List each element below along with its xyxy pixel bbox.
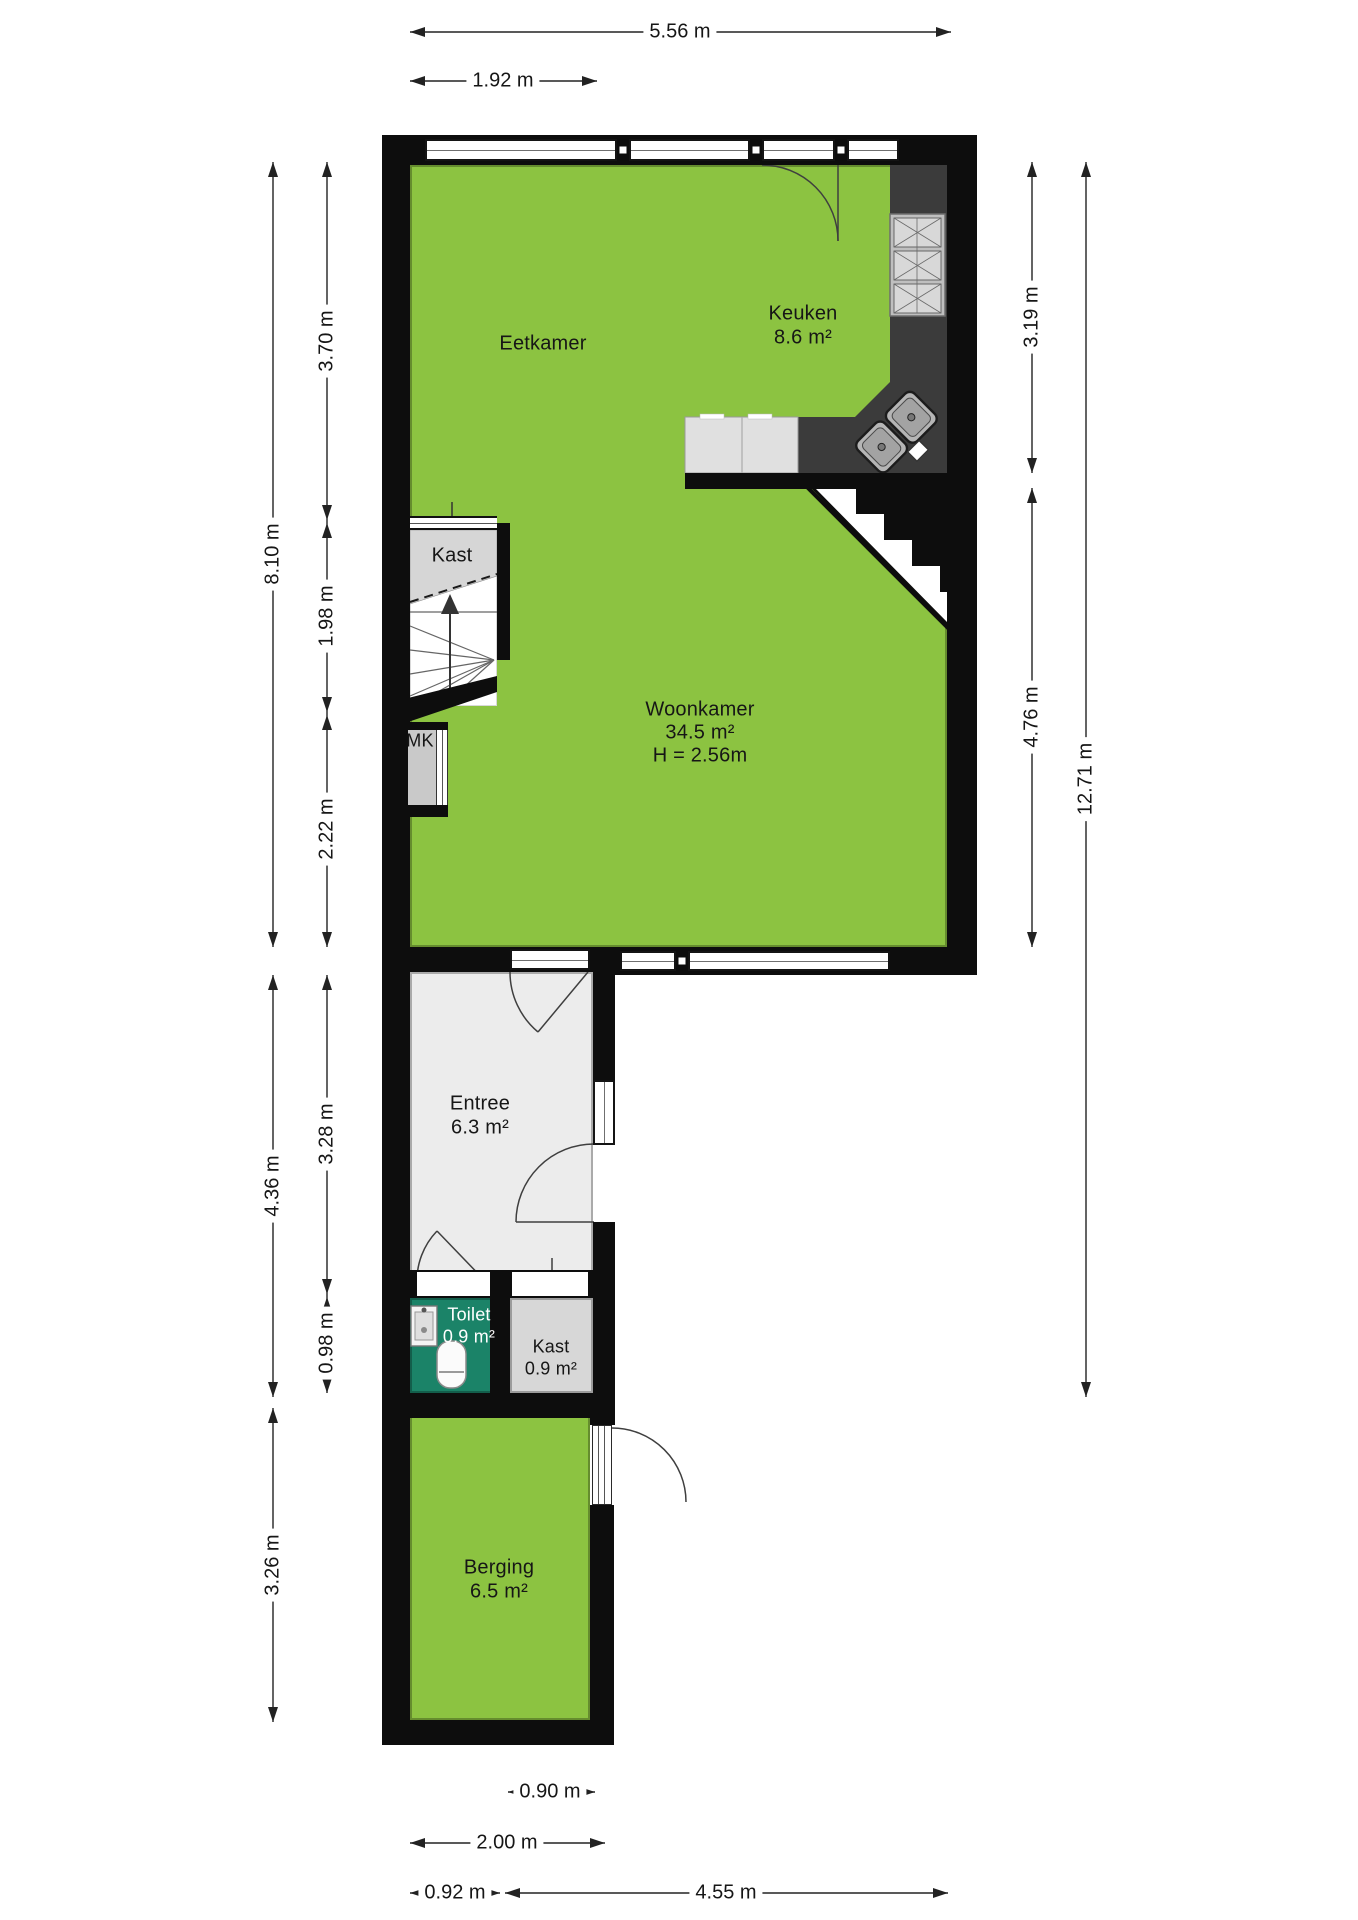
front-door-sidelight bbox=[593, 1080, 615, 1145]
toilet-door-opening bbox=[417, 1272, 490, 1296]
dim-left-berging: 3.26 m bbox=[261, 1528, 286, 1601]
dim-left-seg-3: 2.22 m bbox=[315, 792, 340, 865]
glazed-panel-entree-door bbox=[510, 949, 590, 970]
wall-kitchen-bottom bbox=[685, 473, 947, 489]
room-label-toilet: Toilet bbox=[447, 1305, 490, 1326]
meter-cupboard-door bbox=[436, 730, 448, 805]
room-height-woonkamer: H = 2.56m bbox=[653, 745, 748, 768]
window-top-3 bbox=[762, 139, 835, 161]
dim-right-woonkamer: 4.76 m bbox=[1020, 680, 1045, 753]
toilet-icon bbox=[437, 1341, 466, 1388]
wall-berging-right bbox=[590, 1505, 614, 1745]
room-area-toilet: 0.9 m² bbox=[443, 1327, 495, 1348]
window-livingroom-bottom-2 bbox=[688, 951, 890, 971]
wall-left bbox=[382, 135, 410, 1745]
room-area-berging: 6.5 m² bbox=[470, 1581, 528, 1604]
window-top-1 bbox=[425, 139, 617, 161]
window-mullion-icon bbox=[617, 139, 629, 161]
stairs-icon bbox=[408, 502, 497, 722]
dim-right-total: 12.71 m bbox=[1074, 737, 1099, 821]
closet-lower-opening bbox=[512, 1272, 588, 1296]
dim-bottom-right: 4.55 m bbox=[689, 1881, 762, 1906]
dim-left-seg-entree: 3.28 m bbox=[315, 1097, 340, 1170]
corner-stairs-icon bbox=[806, 486, 951, 631]
closet-sliding-door bbox=[410, 516, 497, 530]
dim-left-total-hall: 4.36 m bbox=[261, 1149, 286, 1222]
front-door-swing bbox=[516, 1144, 594, 1222]
floor-plan: Eetkamer Keuken 8.6 m² Woonkamer 34.5 m²… bbox=[0, 0, 1358, 1920]
wall-entree-right-a bbox=[593, 975, 615, 1080]
wall-stairs-right bbox=[497, 523, 510, 660]
dim-top-width: 5.56 m bbox=[643, 20, 716, 45]
room-label-eetkamer: Eetkamer bbox=[499, 333, 586, 356]
room-label-kast-lower: Kast bbox=[533, 1337, 570, 1358]
room-label-berging: Berging bbox=[464, 1557, 534, 1580]
room-area-keuken: 8.6 m² bbox=[774, 327, 832, 350]
washbasin-icon bbox=[411, 1306, 437, 1346]
room-area-entree: 6.3 m² bbox=[451, 1117, 509, 1140]
room-area-woonkamer: 34.5 m² bbox=[665, 722, 734, 745]
dim-left-seg-toilet: 0.98 m bbox=[315, 1306, 340, 1379]
dim-bottom-door: 0.90 m bbox=[513, 1780, 586, 1805]
room-label-kast-upper: Kast bbox=[432, 545, 473, 568]
window-mullion-icon bbox=[750, 139, 762, 161]
dim-left-total-upper: 8.10 m bbox=[261, 517, 286, 590]
room-label-entree: Entree bbox=[450, 1093, 510, 1116]
room-label-mk: MK bbox=[406, 731, 433, 752]
dim-left-seg-2: 1.98 m bbox=[315, 579, 340, 652]
dim-top-strip: 1.92 m bbox=[466, 69, 539, 94]
room-label-woonkamer: Woonkamer bbox=[645, 699, 754, 722]
dim-bottom-berging: 2.00 m bbox=[470, 1831, 543, 1856]
window-mullion-icon bbox=[676, 951, 688, 971]
cabinet-handle-icon bbox=[748, 414, 772, 419]
berging-door-leaf bbox=[592, 1425, 612, 1505]
dim-bottom-left: 0.92 m bbox=[418, 1881, 491, 1906]
wall-hall-bottom bbox=[382, 1393, 614, 1418]
livingroom-entree-door-swing bbox=[510, 972, 588, 1032]
room-label-keuken: Keuken bbox=[768, 303, 837, 326]
window-mullion-icon bbox=[835, 139, 847, 161]
cabinet-handle-icon bbox=[700, 414, 724, 419]
window-top-4 bbox=[847, 139, 899, 161]
kitchen-door-swing bbox=[762, 165, 838, 241]
berging-door-swing bbox=[612, 1428, 686, 1502]
wall-berging-right-top bbox=[590, 1418, 614, 1425]
room-area-kast-lower: 0.9 m² bbox=[525, 1359, 577, 1380]
stove-icon bbox=[890, 214, 945, 316]
dim-right-keuken: 3.19 m bbox=[1020, 280, 1045, 353]
wall-berging-bottom bbox=[382, 1720, 614, 1745]
window-top-2 bbox=[629, 139, 750, 161]
wall-right-upper bbox=[947, 135, 977, 975]
dim-left-seg-1: 3.70 m bbox=[315, 304, 340, 377]
window-livingroom-bottom-1 bbox=[620, 951, 676, 971]
